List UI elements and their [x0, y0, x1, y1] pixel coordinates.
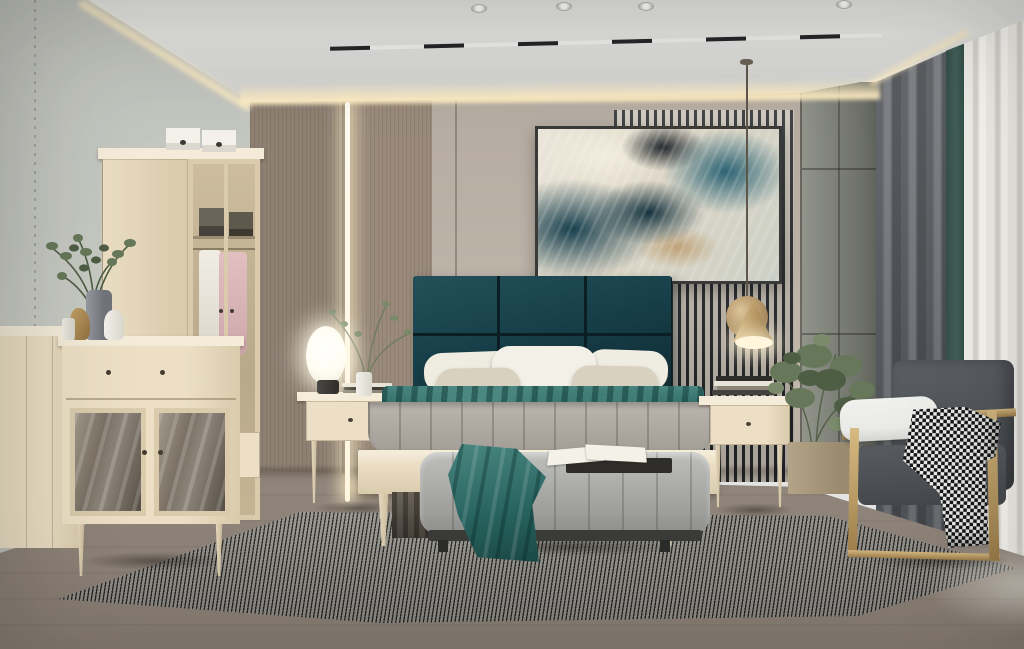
door-knob: [219, 309, 223, 313]
nightstand-leg: [310, 441, 318, 503]
spotlight: [638, 2, 654, 11]
door-knob: [230, 309, 234, 313]
small-white-vase: [356, 372, 372, 396]
bench-foot: [438, 540, 448, 552]
box-on-wardrobe: [166, 128, 200, 150]
box-hole: [180, 140, 186, 145]
bench-foot: [660, 540, 670, 552]
open-book-page: [585, 444, 647, 462]
glass-door: [70, 408, 146, 516]
spotlight: [471, 4, 487, 13]
drawer-knob: [160, 370, 165, 375]
sideboard-seam: [52, 336, 53, 548]
storage-box: [199, 208, 225, 236]
drawer-knob: [746, 422, 751, 426]
spotlight: [836, 0, 852, 9]
pendant-canopy: [740, 59, 753, 65]
door-knob: [158, 450, 163, 455]
table-lamp-base: [317, 380, 339, 394]
wall-art: [535, 126, 782, 284]
panel-seam: [802, 168, 878, 170]
box-on-wardrobe: [202, 130, 236, 152]
quilted-duvet: [368, 402, 712, 454]
white-vase: [104, 310, 124, 340]
spotlight: [556, 2, 572, 11]
white-garment: [199, 250, 221, 348]
white-cup: [62, 318, 75, 340]
drawer-knob: [348, 418, 353, 422]
drawer-divider: [66, 398, 236, 400]
sideboard-seam: [26, 336, 27, 548]
storage-box: [229, 212, 253, 238]
dresser: [62, 336, 240, 568]
box-hole: [216, 142, 222, 147]
nightstand-leg: [776, 445, 784, 507]
nightstand-leg: [714, 445, 722, 507]
door-knob: [142, 450, 147, 455]
pendant-cord: [746, 64, 748, 302]
planter-box: [788, 442, 858, 494]
drawer-knob: [106, 370, 111, 375]
bedroom-scene: [0, 0, 1024, 649]
table-lamp: [306, 326, 346, 384]
glass-door: [154, 408, 230, 516]
